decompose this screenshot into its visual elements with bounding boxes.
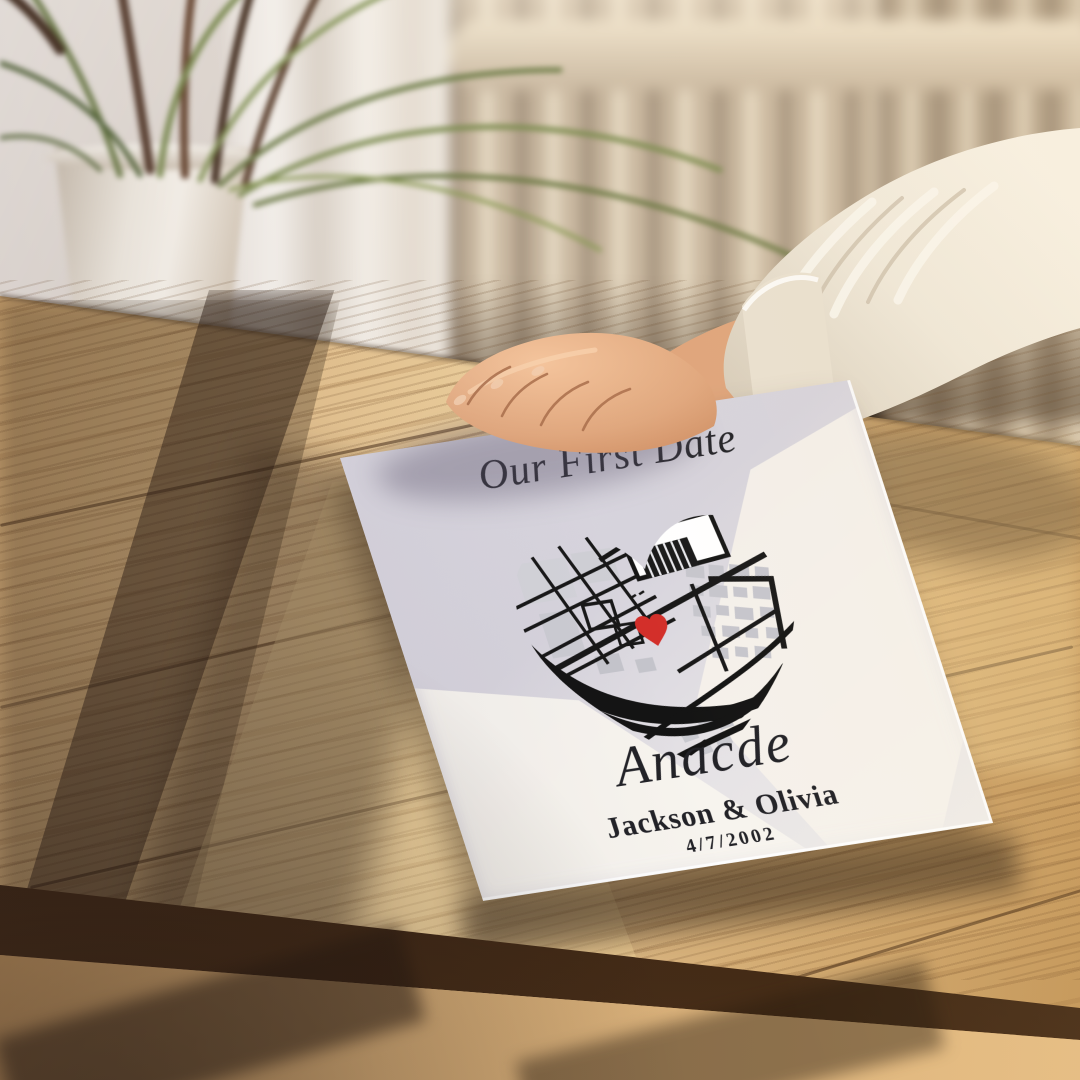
product-photo-scene: Our First Date Anacde Jackson & Olivia 4… <box>0 0 1080 1080</box>
hand <box>420 310 740 470</box>
